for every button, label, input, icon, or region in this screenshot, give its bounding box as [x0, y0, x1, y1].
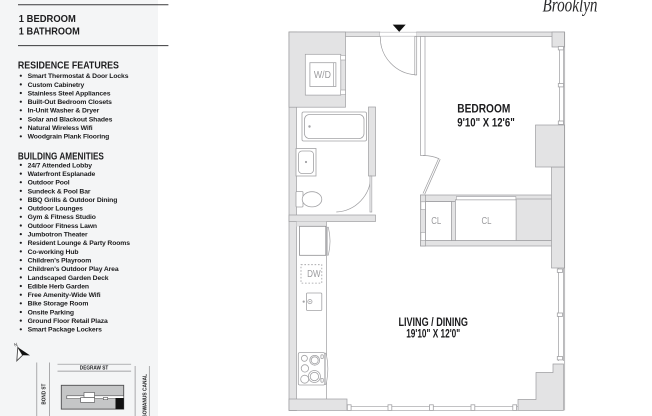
svg-text:Gym & Fitness Studio: Gym & Fitness Studio [28, 214, 96, 221]
svg-text:DW: DW [307, 269, 321, 280]
svg-text:Smart Package Lockers: Smart Package Lockers [28, 327, 103, 334]
svg-text:Natural Wireless Wifi: Natural Wireless Wifi [28, 125, 93, 132]
svg-text:24/7 Attended Lobby: 24/7 Attended Lobby [28, 162, 93, 169]
svg-text:Sundeck & Pool Bar: Sundeck & Pool Bar [28, 188, 91, 195]
svg-text:Smart Thermostat & Door Locks: Smart Thermostat & Door Locks [28, 73, 129, 80]
svg-text:LIVING / DINING: LIVING / DINING [398, 315, 468, 329]
svg-text:19'10" X 12'0": 19'10" X 12'0" [406, 329, 460, 341]
svg-text:1 BATHROOM: 1 BATHROOM [19, 27, 80, 38]
svg-text:Stainless Steel Appliances: Stainless Steel Appliances [28, 90, 111, 97]
svg-text:Bike Storage Room: Bike Storage Room [28, 301, 89, 308]
svg-text:BEDROOM: BEDROOM [457, 102, 510, 116]
svg-text:Children's Outdoor Play Area: Children's Outdoor Play Area [28, 266, 119, 273]
svg-text:Outdoor Lounges: Outdoor Lounges [28, 206, 84, 213]
svg-text:Jumbotron Theater: Jumbotron Theater [28, 232, 88, 239]
svg-text:Built-Out Bedroom Closets: Built-Out Bedroom Closets [28, 99, 113, 106]
svg-text:BUILDING AMENITIES: BUILDING AMENITIES [18, 150, 104, 162]
svg-text:Waterfront Esplanade: Waterfront Esplanade [28, 171, 96, 178]
svg-text:BOND ST: BOND ST [42, 383, 48, 404]
svg-text:Custom Cabinetry: Custom Cabinetry [28, 82, 85, 89]
svg-text:GOWANUS CANAL: GOWANUS CANAL [143, 373, 149, 416]
svg-text:1 BEDROOM: 1 BEDROOM [19, 14, 76, 25]
svg-text:Solar and Blackout Shades: Solar and Blackout Shades [28, 116, 113, 123]
svg-text:DEGRAW ST: DEGRAW ST [80, 365, 109, 371]
svg-text:W/D: W/D [314, 70, 331, 81]
svg-text:Co-working Hub: Co-working Hub [28, 249, 79, 256]
svg-text:Resident Lounge & Party Rooms: Resident Lounge & Party Rooms [28, 240, 131, 247]
svg-text:Outdoor Fitness Lawn: Outdoor Fitness Lawn [28, 223, 97, 230]
svg-text:Edible Herb Garden: Edible Herb Garden [28, 283, 89, 290]
svg-text:Free Amenity-Wide Wifi: Free Amenity-Wide Wifi [28, 292, 101, 299]
svg-text:CL: CL [431, 216, 441, 227]
svg-text:RESIDENCE FEATURES: RESIDENCE FEATURES [18, 59, 119, 71]
svg-text:In-Unit Washer & Dryer: In-Unit Washer & Dryer [28, 108, 100, 115]
svg-text:CL: CL [482, 216, 492, 227]
svg-text:9'10" X 12'6": 9'10" X 12'6" [457, 118, 515, 130]
svg-text:Outdoor Pool: Outdoor Pool [28, 180, 70, 187]
svg-text:Onsite Parking: Onsite Parking [28, 309, 74, 316]
svg-text:Children's Playroom: Children's Playroom [28, 258, 92, 265]
svg-text:Brooklyn: Brooklyn [543, 0, 598, 17]
svg-text:BBQ Grills & Outdoor Dining: BBQ Grills & Outdoor Dining [28, 197, 118, 204]
svg-text:Landscaped Garden Deck: Landscaped Garden Deck [28, 275, 109, 282]
svg-text:Woodgrain Plank Flooring: Woodgrain Plank Flooring [28, 134, 110, 141]
svg-text:Ground Floor Retail Plaza: Ground Floor Retail Plaza [28, 318, 108, 325]
